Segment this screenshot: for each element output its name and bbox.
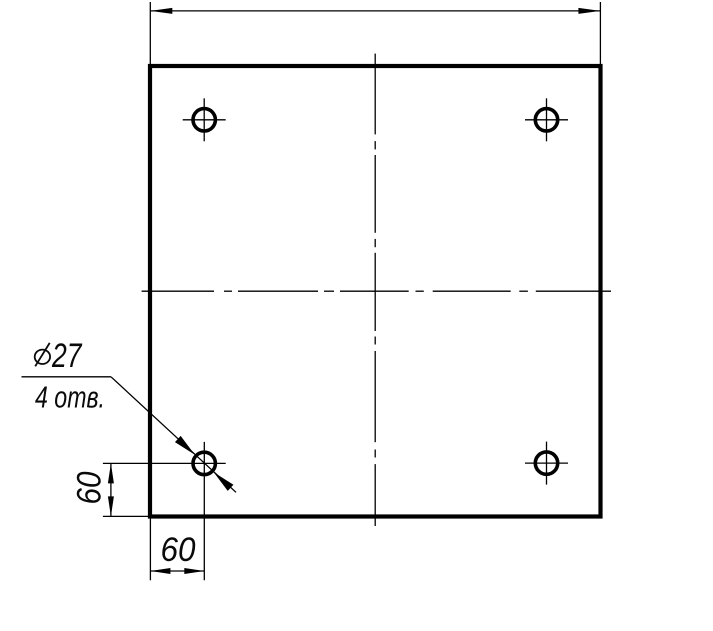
svg-text:27: 27 xyxy=(51,337,82,375)
svg-text:60: 60 xyxy=(71,471,109,504)
svg-text:4 отв.: 4 отв. xyxy=(35,379,105,414)
svg-text:60: 60 xyxy=(161,531,196,569)
